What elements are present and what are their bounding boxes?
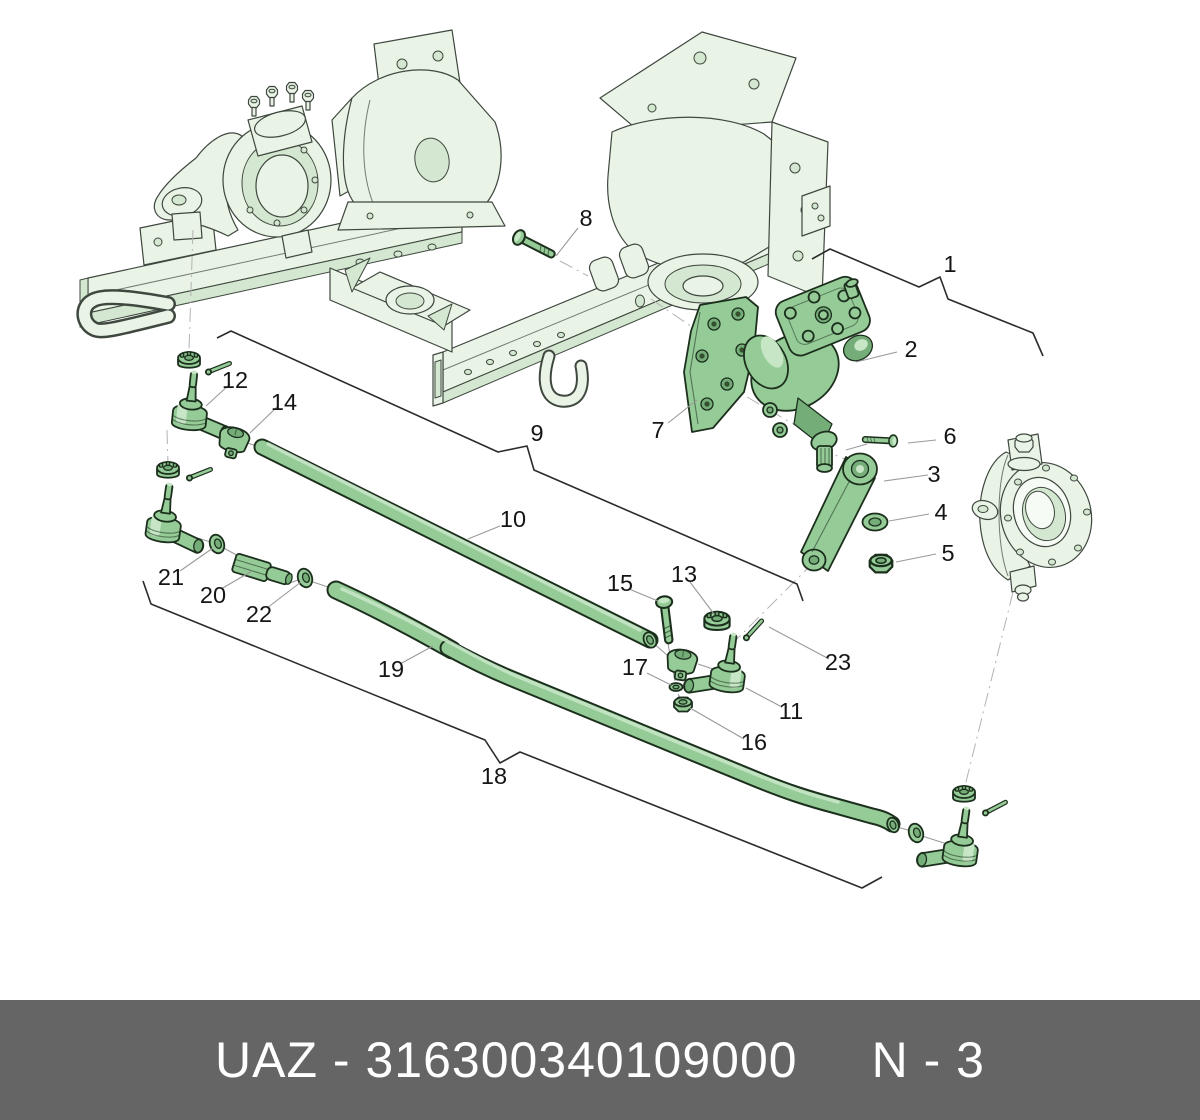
part-pitman-arm-3 bbox=[801, 454, 877, 572]
part-label-7: 7 bbox=[651, 417, 664, 443]
leader-3 bbox=[884, 475, 928, 481]
part-label-13: 13 bbox=[671, 561, 697, 587]
footer-part-code: UAZ - 316300340109000 bbox=[215, 1031, 798, 1089]
part-label-18: 18 bbox=[481, 763, 507, 789]
leader-15 bbox=[629, 589, 658, 601]
leader-4 bbox=[889, 514, 929, 521]
part-label-21: 21 bbox=[158, 564, 184, 590]
leader-19 bbox=[400, 646, 433, 664]
part-label-12: 12 bbox=[222, 367, 248, 393]
part-washer-lower-right bbox=[906, 822, 925, 844]
part-label-14: 14 bbox=[271, 389, 297, 415]
part-cotter-pin-lower-right bbox=[982, 802, 1007, 816]
part-washer-4 bbox=[863, 514, 888, 531]
leader-17 bbox=[647, 673, 671, 685]
part-tie-rod-end-21 bbox=[144, 480, 212, 553]
part-label-4: 4 bbox=[934, 499, 947, 525]
part-label-15: 15 bbox=[607, 570, 633, 596]
part-label-22: 22 bbox=[246, 601, 272, 627]
part-clamp-17 bbox=[665, 647, 699, 682]
part-label-9: 9 bbox=[530, 420, 543, 446]
steering-knuckle-housing bbox=[970, 434, 1104, 601]
part-steering-gear-2 bbox=[735, 273, 877, 472]
leader-22 bbox=[267, 582, 301, 608]
part-label-5: 5 bbox=[941, 540, 954, 566]
part-nut-5 bbox=[870, 555, 893, 573]
footer-bar: UAZ - 316300340109000 N - 3 bbox=[0, 1000, 1200, 1120]
bracket-group-18 bbox=[143, 581, 882, 888]
part-cotter-pin-21 bbox=[186, 469, 211, 480]
leader-6 bbox=[908, 440, 936, 443]
part-label-23: 23 bbox=[825, 649, 851, 675]
part-bolt-15 bbox=[655, 595, 677, 644]
part-label-19: 19 bbox=[378, 656, 404, 682]
leader-5 bbox=[896, 554, 936, 562]
part-tie-rod-10 bbox=[262, 444, 659, 650]
part-label-8: 8 bbox=[579, 205, 592, 231]
part-label-2: 2 bbox=[904, 336, 917, 362]
part-label-1: 1 bbox=[943, 251, 956, 277]
part-label-3: 3 bbox=[927, 461, 940, 487]
part-castle-nut-lower-right bbox=[953, 786, 975, 802]
part-label-17: 17 bbox=[622, 654, 648, 680]
part-adjuster-20 bbox=[232, 553, 295, 589]
leader-10 bbox=[468, 526, 500, 539]
part-washer-21 bbox=[207, 533, 226, 555]
part-bolt-6 bbox=[862, 433, 897, 447]
part-castle-nut-21 bbox=[157, 462, 179, 478]
part-castle-nut-13 bbox=[704, 612, 729, 630]
part-nut-16 bbox=[674, 698, 692, 712]
part-bolt-8 bbox=[511, 228, 558, 262]
leader-11 bbox=[746, 688, 782, 707]
part-washer-22 bbox=[295, 567, 314, 589]
footer-sheet-number: N - 3 bbox=[872, 1031, 985, 1089]
part-label-20: 20 bbox=[200, 582, 226, 608]
part-label-16: 16 bbox=[741, 729, 767, 755]
leader-8 bbox=[556, 228, 578, 256]
diagram-canvas: 1 2 3 4 5 6 7 8 9 10 11 12 13 14 15 16 1… bbox=[0, 0, 1200, 1120]
part-castle-nut-12 bbox=[178, 352, 200, 368]
part-label-10: 10 bbox=[500, 506, 526, 532]
leader-23 bbox=[769, 627, 829, 659]
part-washer-17 bbox=[670, 683, 683, 691]
part-label-6: 6 bbox=[943, 423, 956, 449]
part-label-11: 11 bbox=[779, 698, 803, 724]
leader-16 bbox=[690, 708, 744, 739]
